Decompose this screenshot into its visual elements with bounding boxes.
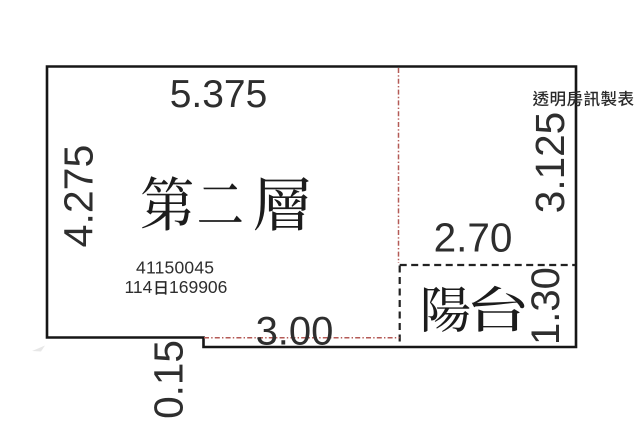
svg-text:4.275: 4.275 xyxy=(56,145,102,248)
svg-text:114: 114 xyxy=(125,277,153,297)
svg-text:1.30: 1.30 xyxy=(524,267,568,345)
svg-text:41150045: 41150045 xyxy=(136,258,214,278)
svg-text:169906: 169906 xyxy=(169,277,227,297)
svg-text:3.125: 3.125 xyxy=(527,112,573,213)
svg-text:0.15: 0.15 xyxy=(146,340,192,419)
svg-text:3.00: 3.00 xyxy=(256,310,334,354)
svg-text:5.375: 5.375 xyxy=(170,73,268,116)
svg-text:2.70: 2.70 xyxy=(434,215,513,261)
